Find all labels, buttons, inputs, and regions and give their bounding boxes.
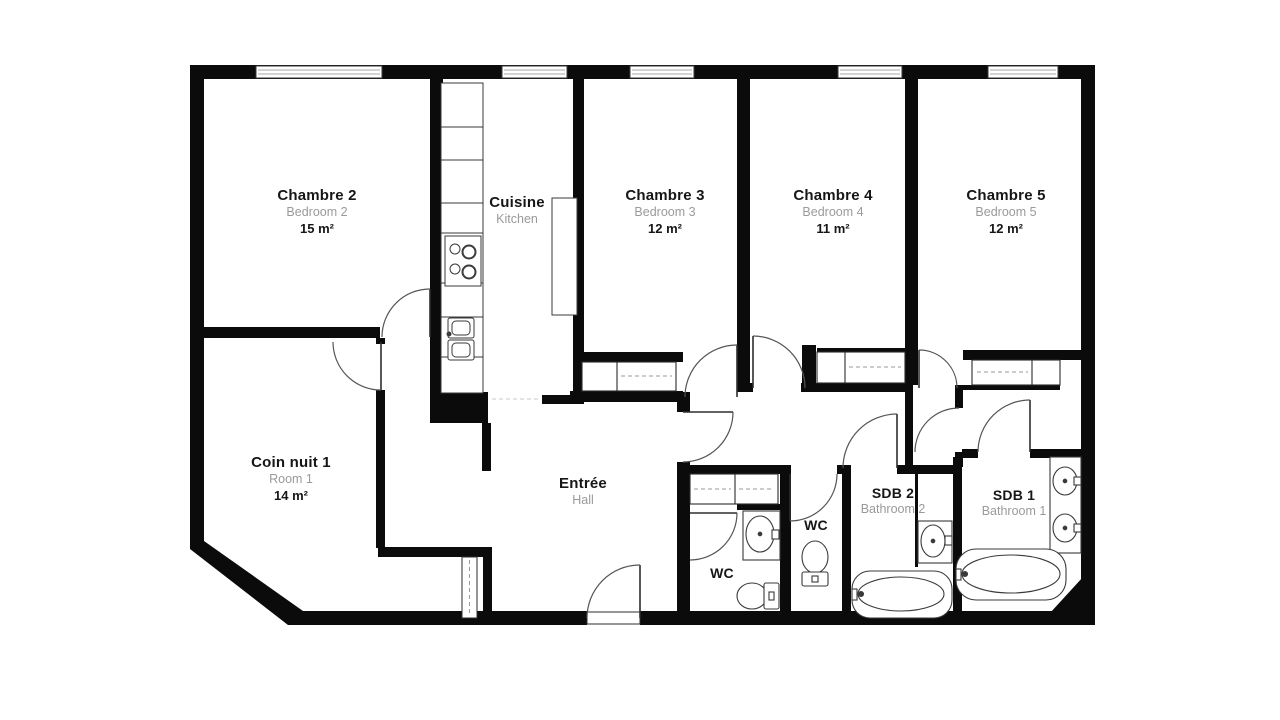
room-label-sdb1: SDB 1 Bathroom 1 [982, 488, 1047, 519]
window-icon [256, 66, 382, 78]
window-icon [988, 66, 1058, 78]
door-chambre3-icon [685, 345, 737, 397]
cooktop-icon [445, 236, 481, 286]
sink-icon [918, 521, 952, 563]
toilet-icon [802, 541, 828, 586]
window-icon [502, 66, 567, 78]
bathtub-icon [852, 571, 952, 618]
room-label-cuisine: Cuisine Kitchen [489, 195, 545, 227]
room-title: Chambre 4 [793, 188, 872, 204]
door-coin-nuit-icon [333, 342, 381, 390]
room-area: 12 m² [625, 222, 704, 236]
closet-chambre3-icon [582, 362, 676, 391]
door-corridor-icon [915, 408, 959, 452]
room-area: 12 m² [966, 222, 1045, 236]
room-area: 15 m² [277, 222, 356, 236]
door-wc1-icon [690, 513, 737, 560]
door-hall-wc-icon [683, 412, 733, 462]
room-title: Entrée [559, 476, 607, 492]
door-chambre5-icon [919, 350, 957, 388]
window-icon [630, 66, 694, 78]
room-subtitle: Bedroom 3 [625, 206, 704, 220]
room-label-entree: Entrée Hall [559, 476, 607, 508]
floor-plan-drawing [0, 0, 1280, 720]
room-title: WC [710, 566, 734, 581]
closet-chambre5-icon [972, 356, 1060, 385]
room-area: 14 m² [251, 489, 331, 503]
room-area: 11 m² [793, 222, 872, 236]
sliding-door-icon [462, 557, 477, 618]
closet-chambre4-icon [817, 348, 905, 383]
kitchen-cupboard [552, 198, 577, 315]
room-label-coin-nuit: Coin nuit 1 Room 1 14 m² [251, 455, 331, 503]
vanity-icon [1050, 457, 1081, 553]
room-title: Chambre 5 [966, 188, 1045, 204]
room-label-sdb2: SDB 2 Bathroom 2 [861, 486, 926, 517]
room-label-chambre3: Chambre 3 Bedroom 3 12 m² [625, 188, 704, 236]
room-label-wc-hall: WC [710, 566, 734, 581]
room-subtitle: Bedroom 5 [966, 206, 1045, 220]
room-title: Cuisine [489, 195, 545, 211]
room-title: SDB 1 [982, 488, 1047, 503]
closets [582, 348, 1060, 504]
bathtub-icon [956, 549, 1066, 600]
door-chambre2-icon [382, 289, 430, 337]
room-label-wc-small: WC [804, 518, 828, 533]
sink-icon [743, 511, 780, 560]
room-subtitle: Hall [559, 494, 607, 508]
window-icon [838, 66, 902, 78]
entry-door-icon [587, 565, 640, 624]
room-subtitle: Room 1 [251, 473, 331, 487]
door-sdb2-icon [843, 414, 897, 468]
room-subtitle: Bathroom 1 [982, 505, 1047, 519]
door-sdb1-icon [978, 400, 1030, 452]
room-subtitle: Bedroom 2 [277, 206, 356, 220]
room-label-chambre5: Chambre 5 Bedroom 5 12 m² [966, 188, 1045, 236]
room-title: SDB 2 [861, 486, 926, 501]
room-subtitle: Bedroom 4 [793, 206, 872, 220]
room-subtitle: Kitchen [489, 213, 545, 227]
floor-plan: Chambre 2 Bedroom 2 15 m² Cuisine Kitche… [0, 0, 1280, 720]
room-title: Coin nuit 1 [251, 455, 331, 471]
room-title: Chambre 2 [277, 188, 356, 204]
kitchen-fixtures [441, 83, 577, 393]
room-label-chambre2: Chambre 2 Bedroom 2 15 m² [277, 188, 356, 236]
toilet-icon [737, 583, 779, 609]
room-label-chambre4: Chambre 4 Bedroom 4 11 m² [793, 188, 872, 236]
room-subtitle: Bathroom 2 [861, 503, 926, 517]
door-wc2-icon [790, 474, 837, 521]
door-chambre4-icon [753, 336, 805, 388]
closet-wc-hall-icon [690, 474, 778, 504]
room-title: Chambre 3 [625, 188, 704, 204]
room-title: WC [804, 518, 828, 533]
diagonal-wall [190, 541, 303, 625]
